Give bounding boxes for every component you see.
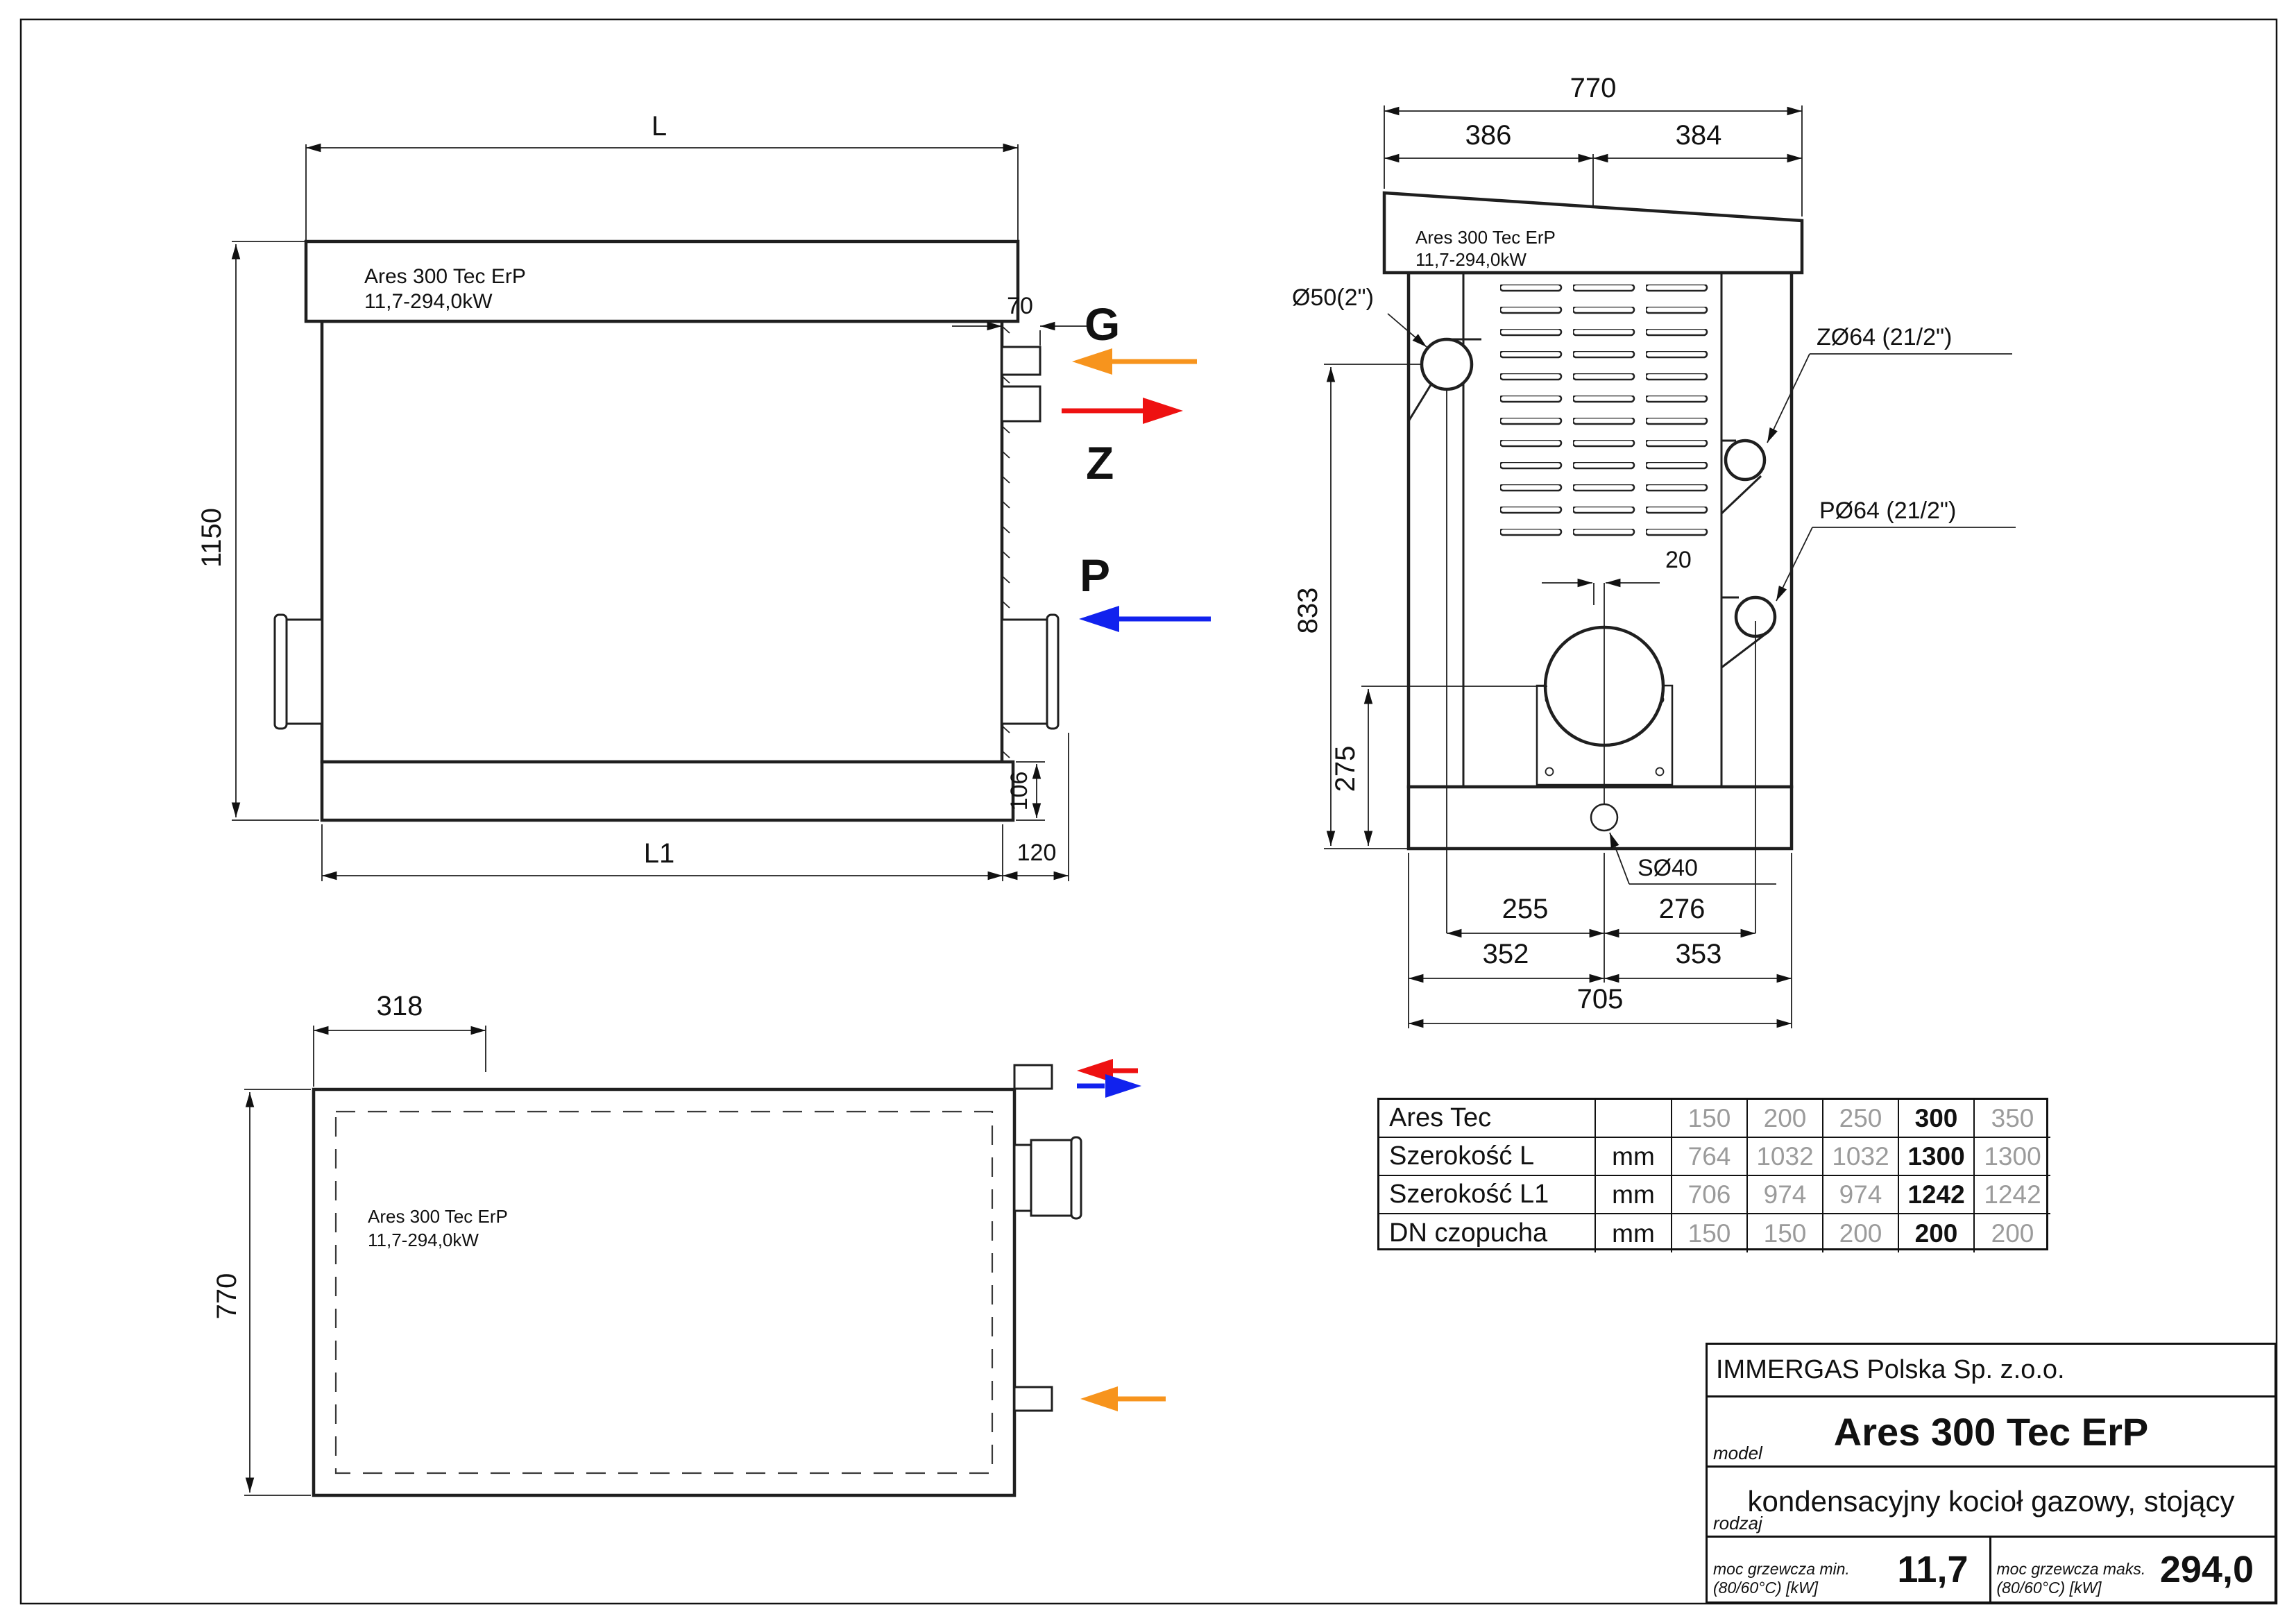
- svg-text:353: 353: [1676, 939, 1722, 969]
- svg-text:120: 120: [1017, 840, 1057, 866]
- spec-table-model: 250: [1823, 1100, 1899, 1138]
- company-row: IMMERGAS Polska Sp. z.o.o.: [1708, 1345, 2274, 1397]
- supply-letter: Z: [1086, 437, 1114, 488]
- spec-row-unit: mm: [1596, 1176, 1672, 1214]
- spec-cell: 1242: [1975, 1176, 2050, 1214]
- svg-text:833: 833: [1293, 588, 1323, 634]
- return-arrow-head-icon: [1079, 606, 1119, 632]
- side-view: Ares 300 Tec ErP 11,7-294,0kW 7: [1292, 73, 2016, 1028]
- svg-text:Ø50(2"): Ø50(2"): [1292, 284, 1374, 311]
- model-caption: model: [1713, 1443, 1762, 1464]
- spec-table: Ares Tec 150 200 250 300 350 Szerokość L…: [1377, 1098, 2048, 1250]
- spec-cell: 200: [1975, 1214, 2050, 1252]
- plan-gas-arrow-head-icon: [1080, 1386, 1118, 1411]
- spec-row-unit: mm: [1596, 1138, 1672, 1176]
- dim-front-width-total: L: [306, 111, 1018, 241]
- power-min-caption: moc grzewcza min. (80/60°C) [kW]: [1713, 1560, 1850, 1597]
- type-caption: rodzaj: [1713, 1513, 1762, 1534]
- svg-text:770: 770: [212, 1273, 242, 1320]
- supply-conn-circle: [1726, 441, 1764, 479]
- label-return-conn: PØ64 (21/2"): [1776, 498, 2016, 601]
- front-hood-name: Ares 300 Tec ErP: [364, 265, 526, 288]
- spec-cell: 150: [1748, 1214, 1823, 1252]
- side-hood-power: 11,7-294,0kW: [1415, 249, 1527, 270]
- svg-text:275: 275: [1330, 746, 1361, 792]
- spec-table-model: 350: [1975, 1100, 2050, 1138]
- svg-text:106: 106: [1006, 772, 1032, 811]
- spec-cell: 974: [1748, 1176, 1823, 1214]
- plan-return-arrow-head-icon: [1105, 1074, 1141, 1098]
- dim-plan-top-offset: 318: [314, 991, 486, 1087]
- gas-arrow-head-icon: [1072, 348, 1112, 375]
- spec-row-label: Szerokość L: [1379, 1138, 1596, 1176]
- spec-table-model-highlighted: 300: [1899, 1100, 1975, 1138]
- plan-bottom-stub: [1014, 1387, 1052, 1411]
- type-row: kondensacyjny kocioł gazowy, stojący rod…: [1708, 1468, 2274, 1538]
- spec-cell: 706: [1672, 1176, 1748, 1214]
- spec-table-header-unit: [1596, 1100, 1672, 1138]
- port-return: P: [1079, 550, 1211, 632]
- dim-front-height-total: 1150: [196, 241, 319, 820]
- front-left-flange: [275, 615, 322, 729]
- svg-text:318: 318: [377, 991, 423, 1021]
- plan-power: 11,7-294,0kW: [368, 1230, 479, 1250]
- gas-letter: G: [1085, 298, 1120, 350]
- spec-cell-highlighted: 1300: [1899, 1138, 1975, 1176]
- power-min-cell: moc grzewcza min. (80/60°C) [kW] 11,7: [1708, 1538, 1991, 1601]
- return-letter: P: [1080, 550, 1110, 601]
- dim-side-depth-halves: 386 384: [1384, 120, 1802, 208]
- spec-cell: 1032: [1823, 1138, 1899, 1176]
- gas-conn-circle: [1422, 339, 1472, 389]
- front-view: Ares 300 Tec ErP 11,7-294,0kW L 1: [196, 111, 1211, 881]
- dim-side-base-depth: 705: [1409, 984, 1792, 1023]
- power-max-cell: moc grzewcza maks. (80/60°C) [kW] 294,0: [1991, 1538, 2275, 1601]
- svg-text:276: 276: [1659, 894, 1706, 924]
- drain-conn-circle: [1591, 804, 1617, 831]
- port-supply: Z: [1062, 398, 1183, 488]
- spec-cell: 200: [1823, 1214, 1899, 1252]
- plan-view: Ares 300 Tec ErP 11,7-294,0kW 318 770: [212, 991, 1166, 1495]
- spec-cell-highlighted: 1242: [1899, 1176, 1975, 1214]
- company-name: IMMERGAS Polska Sp. z.o.o.: [1716, 1355, 2065, 1385]
- plan-name: Ares 300 Tec ErP: [368, 1206, 508, 1227]
- svg-text:L1: L1: [644, 838, 675, 869]
- front-base: [322, 762, 1013, 820]
- svg-text:384: 384: [1676, 120, 1722, 151]
- svg-text:352: 352: [1483, 939, 1529, 969]
- title-block: IMMERGAS Polska Sp. z.o.o. Ares 300 Tec …: [1706, 1343, 2277, 1604]
- model-name: Ares 300 Tec ErP: [1834, 1409, 2148, 1454]
- spec-cell: 764: [1672, 1138, 1748, 1176]
- front-supply-stub: [1002, 386, 1040, 421]
- svg-text:PØ64 (21/2"): PØ64 (21/2"): [1819, 498, 1956, 524]
- front-body: [322, 321, 1002, 762]
- spec-cell-highlighted: 200: [1899, 1214, 1975, 1252]
- spec-row-label: DN czopucha: [1379, 1214, 1596, 1252]
- front-gas-stub: [1002, 347, 1040, 375]
- svg-text:SØ40: SØ40: [1638, 855, 1698, 881]
- label-supply-conn: ZØ64 (21/2"): [1767, 324, 2012, 443]
- svg-text:20: 20: [1665, 547, 1692, 573]
- spec-cell: 1300: [1975, 1138, 2050, 1176]
- power-min-value: 11,7: [1897, 1548, 1968, 1591]
- svg-text:L: L: [652, 111, 667, 142]
- power-max-caption: moc grzewcza maks. (80/60°C) [kW]: [1997, 1560, 2146, 1597]
- label-gas-conn: Ø50(2"): [1292, 284, 1427, 347]
- spec-cell: 1032: [1748, 1138, 1823, 1176]
- port-gas: G: [1072, 298, 1197, 375]
- spec-cell: 974: [1823, 1176, 1899, 1214]
- spec-table-model: 200: [1748, 1100, 1823, 1138]
- svg-text:386: 386: [1465, 120, 1512, 151]
- spec-table-model: 150: [1672, 1100, 1748, 1138]
- svg-text:255: 255: [1502, 894, 1549, 924]
- spec-row-unit: mm: [1596, 1214, 1672, 1252]
- svg-text:1150: 1150: [196, 508, 227, 568]
- model-row: Ares 300 Tec ErP model: [1708, 1397, 2274, 1468]
- supply-conn-bracket-diag: [1721, 476, 1761, 513]
- front-hood-power: 11,7-294,0kW: [364, 290, 493, 313]
- svg-text:705: 705: [1577, 984, 1624, 1014]
- supply-arrow-head-icon: [1143, 398, 1183, 424]
- power-max-value: 294,0: [2160, 1548, 2254, 1591]
- svg-text:70: 70: [1007, 293, 1033, 319]
- svg-text:770: 770: [1570, 73, 1617, 103]
- front-right-flange: [1002, 615, 1058, 729]
- spec-table-header-label: Ares Tec: [1379, 1100, 1596, 1138]
- side-hood-name: Ares 300 Tec ErP: [1415, 227, 1556, 248]
- type-value: kondensacyjny kocioł gazowy, stojący: [1748, 1485, 2235, 1518]
- power-row: moc grzewcza min. (80/60°C) [kW] 11,7 mo…: [1708, 1538, 2274, 1601]
- technical-drawing-sheet: Ares 300 Tec ErP 11,7-294,0kW L 1: [0, 0, 2296, 1623]
- plan-flange: [1014, 1137, 1081, 1218]
- louver-grille: [1500, 284, 1718, 551]
- gas-conn-bracket-diag: [1409, 384, 1431, 421]
- plan-top-stub: [1014, 1065, 1052, 1089]
- dim-plan-depth: 770: [212, 1089, 311, 1495]
- plan-body: [314, 1089, 1014, 1495]
- svg-text:ZØ64 (21/2"): ZØ64 (21/2"): [1817, 324, 1952, 350]
- spec-row-label: Szerokość L1: [1379, 1176, 1596, 1214]
- return-conn-bracket-diag: [1721, 632, 1768, 668]
- plan-inner-dashed: [336, 1112, 992, 1473]
- spec-cell: 150: [1672, 1214, 1748, 1252]
